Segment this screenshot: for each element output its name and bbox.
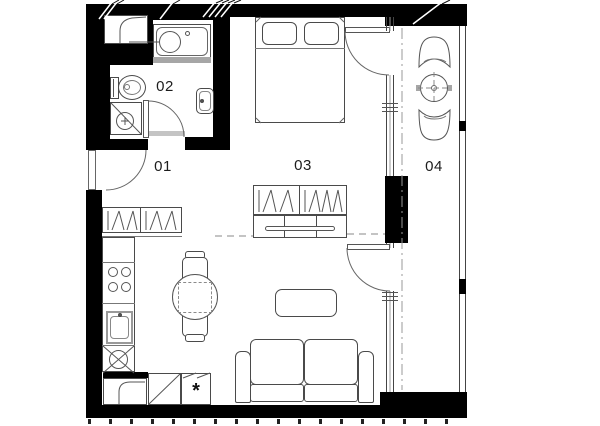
room-label-02: 02 bbox=[150, 78, 180, 94]
wall-base-ticks bbox=[88, 419, 460, 424]
base-cabinet-shaft bbox=[103, 378, 147, 405]
wall-balcony-bottom bbox=[380, 392, 467, 418]
coffee-table bbox=[275, 289, 337, 317]
glazed-wall-segment bbox=[386, 17, 394, 31]
counter-divider bbox=[102, 303, 135, 304]
sofa-seat bbox=[304, 339, 358, 385]
balcony-table-tick bbox=[416, 85, 420, 91]
cooktop-burner bbox=[121, 267, 131, 277]
cooktop-burner bbox=[108, 282, 118, 292]
room-label-03: 03 bbox=[288, 157, 318, 173]
glazed-wall-segment bbox=[386, 75, 394, 176]
balcony-door-bottom-leaf bbox=[347, 244, 390, 250]
wardrobe-divider bbox=[140, 207, 141, 233]
bathtub-drain bbox=[159, 31, 181, 53]
wall-pillar bbox=[385, 176, 408, 243]
sofa-armrest bbox=[358, 351, 374, 403]
balcony-chair-inner bbox=[424, 116, 446, 119]
wall-balcony-top bbox=[385, 4, 467, 26]
entry-door-jamb bbox=[88, 150, 96, 190]
glazed-wall-segment bbox=[386, 291, 394, 392]
pillow-right bbox=[304, 22, 339, 45]
balcony-door-bottom-swing bbox=[347, 248, 390, 291]
balcony-railing bbox=[459, 26, 466, 392]
duct-shaft-box bbox=[104, 15, 148, 44]
wardrobe-living bbox=[253, 185, 347, 215]
window-sill-ticks bbox=[382, 292, 398, 301]
kitchen-sink-basin bbox=[110, 316, 129, 339]
room-label-04: 04 bbox=[419, 158, 449, 174]
bathroom-door-head bbox=[148, 131, 185, 136]
washbasin-tap bbox=[200, 99, 204, 103]
sofa-back-cushion bbox=[304, 384, 358, 402]
wall-bathroom-bottom bbox=[185, 137, 230, 150]
dresser-handle-bar bbox=[265, 226, 335, 231]
floor-plan: * bbox=[0, 0, 600, 426]
sofa-back-cushion bbox=[250, 384, 304, 402]
dining-table-leaf-dashed bbox=[178, 282, 212, 313]
toilet-tank-line bbox=[113, 79, 114, 97]
appliance-marker: * bbox=[184, 380, 208, 403]
sink-unit-circle bbox=[109, 350, 128, 369]
pillow-left bbox=[262, 22, 297, 45]
room-label-01: 01 bbox=[148, 158, 178, 174]
entry-door-swing bbox=[106, 150, 146, 190]
balcony-table-tick bbox=[448, 85, 452, 91]
cooktop-burner bbox=[108, 267, 118, 277]
bathroom-door-leaf bbox=[143, 100, 149, 138]
balcony-table-center bbox=[431, 85, 437, 91]
balcony-chair-inner bbox=[424, 59, 446, 62]
cooktop-burner bbox=[121, 282, 131, 292]
bathtub-overflow bbox=[185, 31, 190, 36]
wall-bathroom-right bbox=[213, 4, 230, 150]
wall-entry-lintel bbox=[88, 139, 148, 150]
railing-post bbox=[459, 121, 466, 131]
balcony-chair bbox=[419, 37, 450, 67]
wall-left bbox=[86, 190, 102, 418]
balcony-chair bbox=[419, 110, 450, 140]
sofa-armrest bbox=[235, 351, 251, 403]
counter-divider bbox=[102, 262, 135, 263]
base-cabinet-diagonal bbox=[148, 373, 181, 405]
kitchen-faucet bbox=[118, 313, 122, 317]
wall-bottom bbox=[86, 405, 390, 418]
toilet-flush bbox=[124, 84, 130, 90]
wardrobe-hall bbox=[102, 207, 182, 233]
shower-drain bbox=[116, 112, 134, 130]
balcony-door-top-leaf bbox=[345, 27, 390, 33]
dining-chair-back bbox=[185, 334, 205, 342]
bed-blanket-line bbox=[255, 48, 345, 49]
wardrobe-divider bbox=[299, 185, 300, 215]
bathtub-rim bbox=[153, 57, 211, 63]
railing-post bbox=[459, 279, 466, 294]
sofa-seat bbox=[250, 339, 304, 385]
counter-divider bbox=[102, 345, 135, 346]
balcony-door-top-swing bbox=[345, 31, 389, 75]
window-sill-ticks bbox=[382, 103, 398, 112]
